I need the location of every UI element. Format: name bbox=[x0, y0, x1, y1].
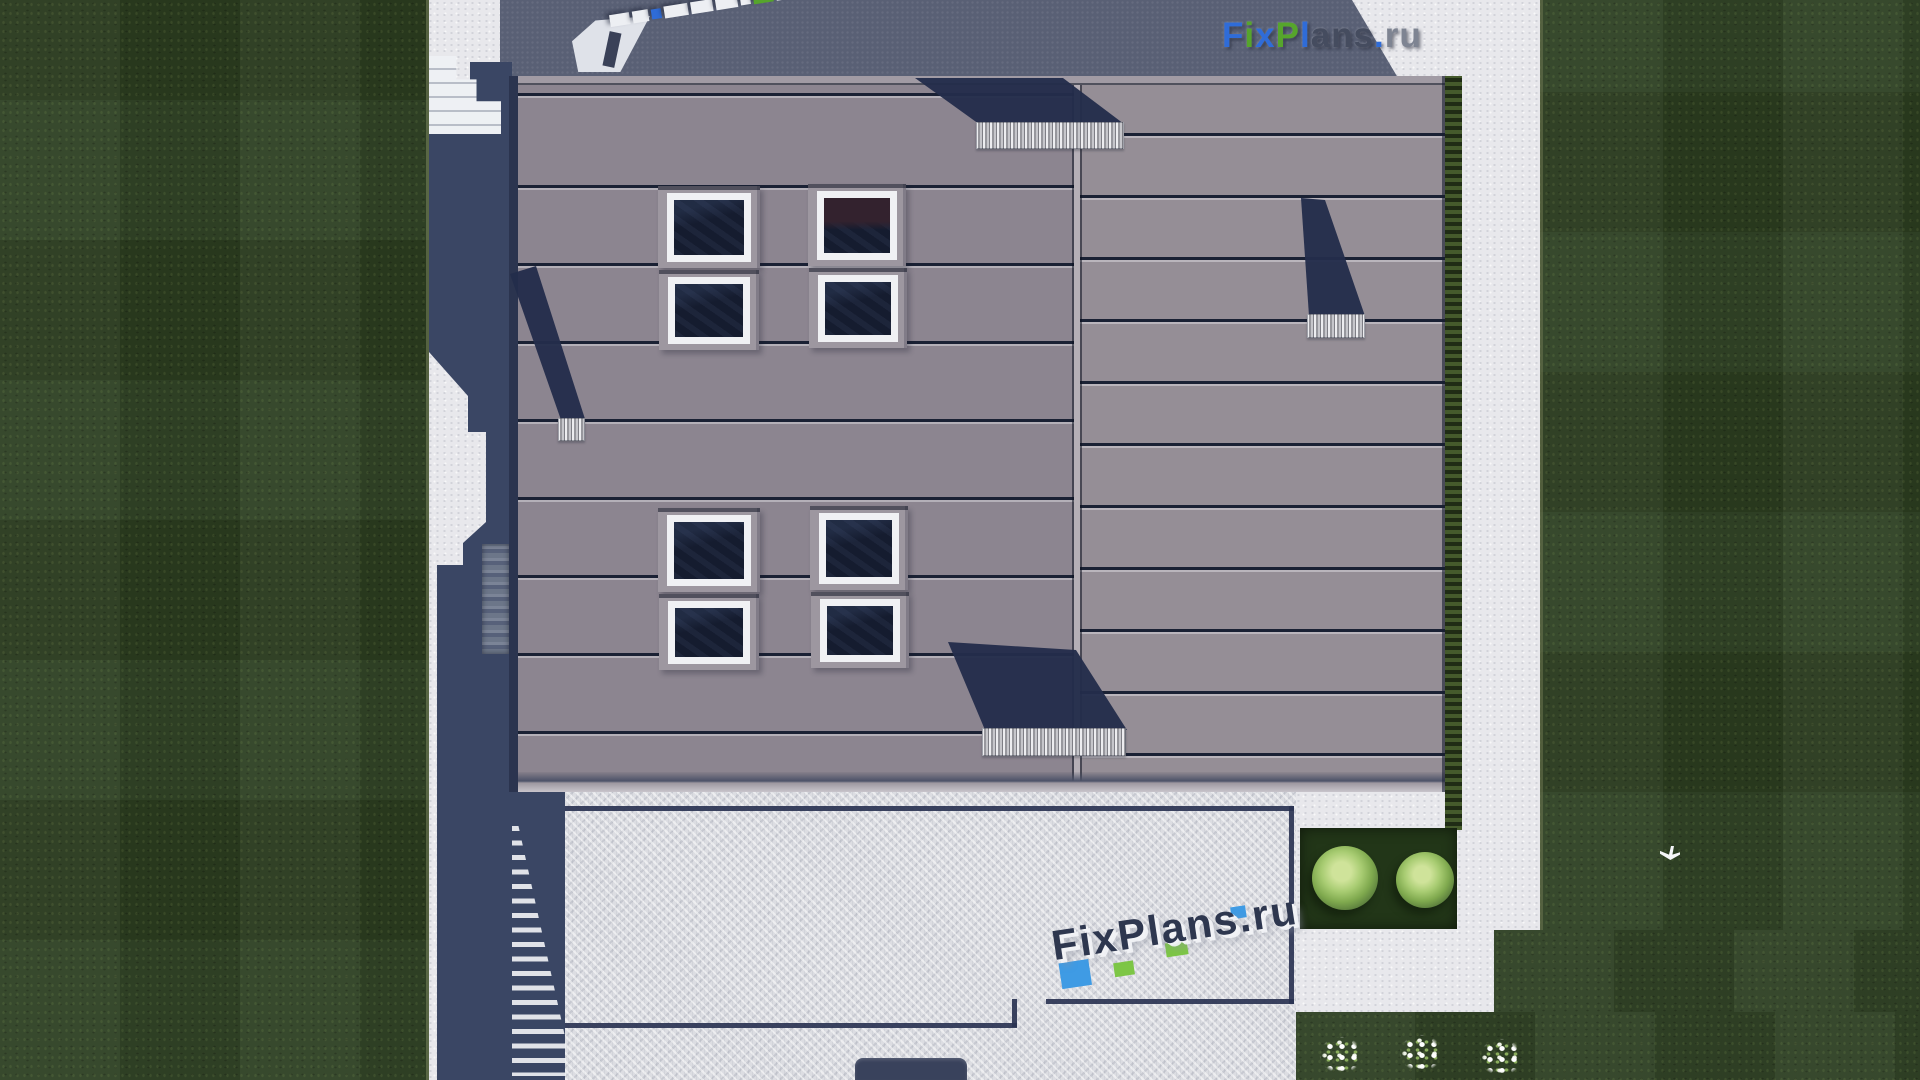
logo-letter: P bbox=[1276, 16, 1300, 55]
terrace-border-line bbox=[558, 806, 1294, 811]
terrace-border-line bbox=[558, 1023, 1017, 1028]
logo-letter: n bbox=[1331, 16, 1353, 55]
logo-letter: u bbox=[1399, 16, 1421, 55]
watermark-block bbox=[775, 0, 801, 1]
skylight bbox=[659, 270, 759, 350]
watermark-block bbox=[663, 3, 689, 19]
watermark-block bbox=[752, 0, 774, 4]
skylight-glass bbox=[668, 601, 750, 664]
watermark-block bbox=[632, 9, 650, 23]
watermark-block bbox=[690, 0, 714, 14]
fan-notch bbox=[603, 31, 622, 67]
stone-retaining-wall bbox=[482, 544, 509, 654]
logo-letter: a bbox=[1311, 16, 1331, 55]
chimney bbox=[1307, 314, 1365, 338]
watermark-accent bbox=[1113, 960, 1135, 977]
skylight-glass bbox=[668, 277, 750, 344]
hedge-strip bbox=[1445, 76, 1462, 830]
logo-letter: . bbox=[1374, 16, 1385, 55]
aerial-house-render: FixPlans.ru FixPlans.ru bbox=[0, 0, 1920, 1080]
bush bbox=[1396, 852, 1454, 908]
watermark-block bbox=[609, 12, 631, 27]
skylight-glass bbox=[817, 191, 897, 260]
skylight bbox=[811, 592, 909, 668]
skylight-glass bbox=[667, 515, 751, 586]
chimney bbox=[976, 122, 1124, 149]
skylight bbox=[808, 184, 906, 266]
logo-letter: r bbox=[1385, 16, 1400, 55]
skylight bbox=[809, 268, 907, 348]
flower-cluster bbox=[1472, 1032, 1530, 1080]
logo-letter: l bbox=[1300, 16, 1311, 55]
lawn-right bbox=[1540, 0, 1920, 932]
lawn-bottom-right bbox=[1295, 1012, 1920, 1080]
chimney bbox=[982, 728, 1126, 756]
skylight bbox=[658, 186, 760, 268]
roof-eave bbox=[512, 772, 1445, 792]
watermark-block bbox=[651, 8, 662, 19]
logo-letter: x bbox=[1255, 16, 1275, 55]
skylight bbox=[658, 508, 760, 592]
chimney bbox=[558, 418, 585, 441]
roof-plane-right bbox=[1078, 76, 1445, 792]
skylight-glass bbox=[818, 275, 898, 342]
skylight-glass bbox=[667, 193, 751, 262]
skylight bbox=[810, 506, 908, 590]
site-logo: FixPlans.ru bbox=[1222, 16, 1422, 56]
logo-letter: F bbox=[1222, 16, 1244, 55]
lawn-left bbox=[0, 0, 429, 1080]
roof-left-edge bbox=[509, 76, 518, 792]
flower-cluster bbox=[1312, 1030, 1370, 1080]
skylight bbox=[659, 594, 759, 670]
entrance-canopy bbox=[855, 1058, 967, 1080]
lawn-right-mid bbox=[1494, 930, 1920, 1014]
watermark-block bbox=[740, 0, 751, 5]
bush bbox=[1312, 846, 1378, 910]
skylight-glass bbox=[820, 599, 900, 662]
skylight-glass bbox=[819, 513, 899, 584]
flower-cluster bbox=[1392, 1028, 1450, 1078]
roof-right-edge bbox=[1442, 76, 1445, 792]
watermark-block bbox=[715, 0, 739, 10]
logo-letter: i bbox=[1244, 16, 1255, 55]
logo-letter: s bbox=[1354, 16, 1374, 55]
